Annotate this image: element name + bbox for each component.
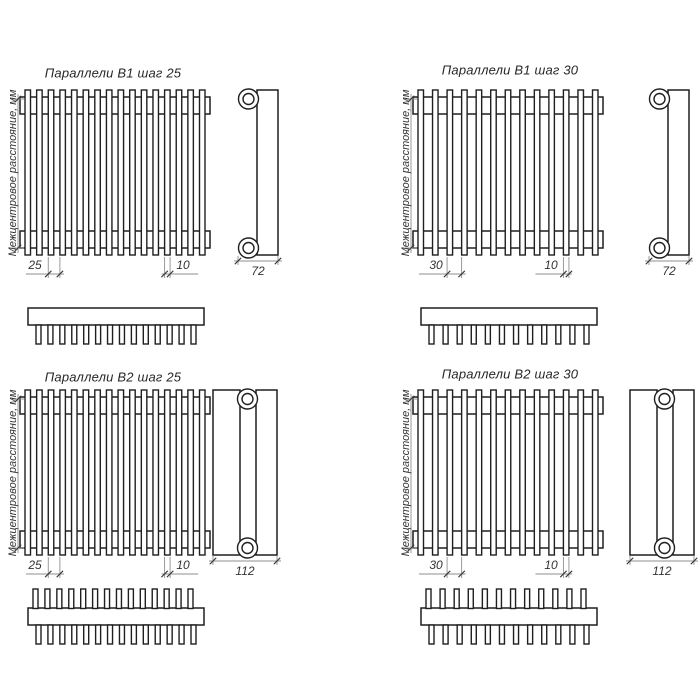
radiator-top-view bbox=[28, 589, 204, 644]
front-dimensions bbox=[419, 557, 572, 578]
center-distance-dimension bbox=[405, 94, 417, 253]
radiator-front-view bbox=[20, 90, 210, 255]
radiator-side-view bbox=[650, 89, 690, 258]
radiator-top-view bbox=[421, 308, 597, 344]
radiator-front-view bbox=[20, 390, 210, 555]
panel-b1-step30 bbox=[405, 89, 693, 344]
drawing-canvas: Параллели В1 шаг 25 Параллели В1 шаг 30 … bbox=[0, 0, 700, 700]
center-distance-dimension bbox=[12, 394, 24, 553]
drawing-linework bbox=[0, 0, 700, 700]
depth-dimension bbox=[234, 256, 282, 265]
panel-b2-step30 bbox=[405, 389, 698, 644]
panel-b1-step25 bbox=[12, 89, 282, 344]
radiator-side-view bbox=[630, 389, 694, 558]
front-dimensions bbox=[419, 257, 572, 278]
front-dimensions bbox=[26, 557, 198, 578]
radiator-top-view bbox=[28, 308, 204, 344]
radiator-side-view bbox=[239, 89, 279, 258]
center-distance-dimension bbox=[12, 94, 24, 253]
radiator-top-view bbox=[421, 589, 597, 644]
depth-dimension bbox=[645, 256, 693, 265]
radiator-front-view bbox=[413, 390, 603, 555]
center-distance-dimension bbox=[405, 394, 417, 553]
radiator-front-view bbox=[413, 90, 603, 255]
radiator-side-view bbox=[213, 389, 277, 558]
front-dimensions bbox=[26, 257, 198, 278]
panel-b2-step25 bbox=[12, 389, 281, 644]
